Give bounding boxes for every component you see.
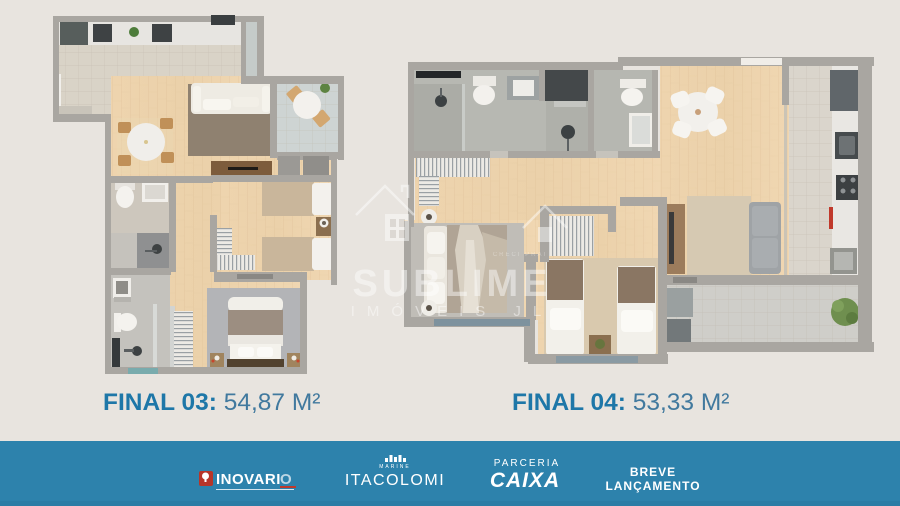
svg-text:PARCERIA: PARCERIA bbox=[494, 458, 560, 469]
svg-text:FINAL 04: 53,33 M²: FINAL 04: 53,33 M² bbox=[512, 389, 729, 416]
svg-text:CAIXA: CAIXA bbox=[490, 469, 560, 492]
svg-text:SUBLIME: SUBLIME bbox=[353, 263, 552, 305]
svg-text:FINAL 03: 54,87 M²: FINAL 03: 54,87 M² bbox=[103, 389, 320, 416]
svg-text:ITACOLOMI: ITACOLOMI bbox=[345, 472, 445, 489]
svg-text:IMÓVEIS JL: IMÓVEIS JL bbox=[351, 303, 554, 320]
svg-text:LANÇAMENTO: LANÇAMENTO bbox=[605, 479, 700, 493]
svg-text:INOVARI: INOVARI bbox=[216, 471, 281, 488]
svg-text:MARINE: MARINE bbox=[379, 464, 410, 470]
svg-text:O: O bbox=[280, 471, 292, 488]
svg-text:BREVE: BREVE bbox=[630, 465, 676, 479]
svg-text:CRECI PRAI: CRECI PRAI bbox=[493, 252, 547, 258]
